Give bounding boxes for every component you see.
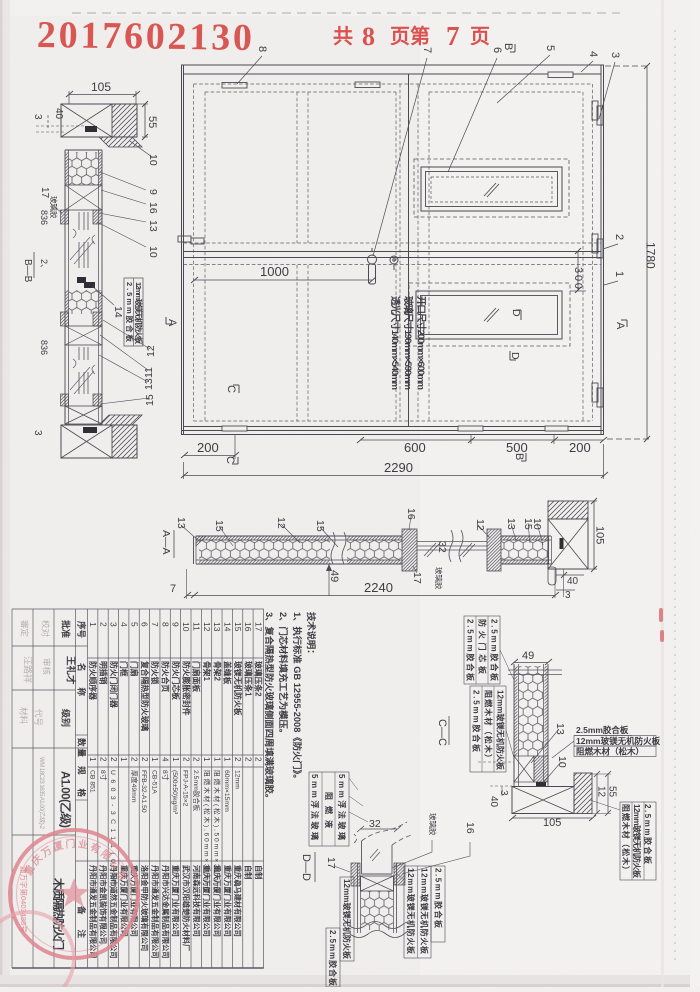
svg-text:12: 12 — [202, 622, 212, 632]
svg-text:12: 12 — [275, 517, 287, 529]
svg-text:7: 7 — [150, 622, 160, 627]
svg-text:13: 13 — [147, 220, 159, 232]
svg-text:A—A: A—A — [160, 530, 172, 555]
svg-text:玻璃压条2: 玻璃压条2 — [254, 661, 264, 697]
svg-text:防火顺序器: 防火顺序器 — [88, 661, 98, 700]
svg-text:1: 1 — [212, 757, 221, 762]
svg-text:1780: 1780 — [644, 242, 658, 269]
svg-text:12mm玻镁无机防火板: 12mm玻镁无机防火板 — [420, 868, 430, 955]
svg-text:5: 5 — [544, 45, 556, 51]
svg-text:技术说明：: 技术说明： — [306, 612, 317, 659]
svg-text:2: 2 — [98, 757, 107, 762]
svg-text:洛阳金甲防火玻璃有限公司: 洛阳金甲防火玻璃有限公司 — [140, 865, 149, 951]
svg-text:8寸: 8寸 — [161, 770, 170, 781]
svg-text:836: 836 — [39, 210, 49, 225]
svg-text:2: 2 — [181, 757, 190, 762]
svg-text:15: 15 — [314, 520, 326, 532]
svg-text:12mm玻镁无机防火板: 12mm玻镁无机防火板 — [134, 282, 144, 345]
svg-text:2.5mm胶合板: 2.5mm胶合板 — [434, 868, 444, 929]
svg-text:11: 11 — [191, 622, 201, 631]
svg-text:A1.00(乙级): A1.00(乙级) — [59, 771, 73, 828]
svg-text:批准: 批准 — [60, 620, 71, 638]
svg-text:厚度49mm: 厚度49mm — [130, 770, 139, 803]
svg-text:重庆万厦门业有限公司: 重庆万厦门业有限公司 — [202, 865, 211, 937]
svg-text:3、复合隔热型防火玻璃侧面四周填满玻璃胶。: 3、复合隔热型防火玻璃侧面四周填满玻璃胶。 — [264, 612, 275, 803]
svg-text:14: 14 — [112, 306, 124, 318]
svg-text:C: C — [225, 385, 237, 393]
svg-text:17: 17 — [325, 857, 337, 869]
svg-text:8: 8 — [160, 622, 170, 627]
svg-text:55: 55 — [607, 786, 618, 798]
svg-text:6: 6 — [140, 622, 150, 627]
svg-text:4: 4 — [161, 757, 170, 762]
svg-text:3: 3 — [32, 430, 43, 436]
svg-text:骨架1: 骨架1 — [202, 661, 212, 682]
svg-text:FPJ-A-15×2: FPJ-A-15×2 — [182, 770, 189, 807]
svg-text:2、: 2、 — [39, 259, 49, 273]
svg-text:C: C — [224, 456, 236, 464]
svg-text:1000: 1000 — [260, 264, 289, 279]
svg-text:渝万字第0403488号: 渝万字第0403488号 — [19, 866, 29, 933]
svg-text:B—B: B—B — [22, 259, 33, 283]
svg-text:2.5mm胶合板: 2.5mm胶合板 — [576, 725, 629, 735]
svg-text:CB-51A: CB-51A — [151, 770, 158, 794]
svg-text:C—C: C—C — [436, 719, 448, 746]
svg-text:2: 2 — [254, 757, 263, 762]
svg-text:12mm: 12mm — [233, 770, 240, 789]
svg-text:1、执行标准 GB 12955-2008《防火门》。: 1、执行标准 GB 12955-2008《防火门》。 — [292, 612, 303, 784]
svg-text:4: 4 — [587, 51, 599, 57]
svg-text:14: 14 — [222, 622, 232, 632]
svg-text:40: 40 — [567, 576, 579, 587]
svg-text:A: A — [166, 319, 178, 327]
svg-text:7: 7 — [421, 47, 433, 53]
svg-text:1: 1 — [119, 757, 128, 762]
svg-text:阻燃木材（松木）: 阻燃木材（松木） — [484, 690, 494, 762]
svg-text:2.5mm胶合板: 2.5mm胶合板 — [328, 930, 338, 987]
svg-text:12: 12 — [596, 786, 607, 798]
svg-text:40: 40 — [53, 108, 64, 120]
svg-text:300: 300 — [572, 267, 584, 289]
svg-text:丹阳市兴达金属制品有限公司: 丹阳市兴达金属制品有限公司 — [161, 865, 170, 958]
svg-text:17: 17 — [254, 622, 264, 632]
svg-text:17: 17 — [411, 572, 423, 584]
svg-text:玻璃胶: 玻璃胶 — [434, 567, 444, 590]
svg-text:60mm×15mm: 60mm×15mm — [223, 770, 230, 812]
svg-text:2: 2 — [613, 234, 625, 240]
svg-text:透光尺寸140mm×540mm: 透光尺寸140mm×540mm — [389, 296, 401, 390]
svg-text:15: 15 — [144, 394, 156, 406]
svg-text:防火锁: 防火锁 — [150, 661, 160, 685]
svg-text:防火膨胀密封件: 防火膨胀密封件 — [181, 661, 191, 716]
svg-text:明插销: 明插销 — [98, 661, 108, 685]
svg-text:2.5mm胶合板: 2.5mm胶合板 — [490, 619, 500, 682]
svg-text:12: 12 — [474, 519, 486, 531]
svg-text:重庆万厦门业有限公司: 重庆万厦门业有限公司 — [223, 865, 232, 937]
svg-text:12mm玻镁无机防火板: 12mm玻镁无机防火板 — [576, 736, 661, 746]
svg-text:自制: 自制 — [244, 865, 253, 879]
svg-text:2240: 2240 — [364, 580, 393, 595]
svg-text:7: 7 — [446, 21, 460, 51]
svg-text:WM 18C23 1635 A1.00(乙级)-2: WM 18C23 1635 A1.00(乙级)-2 — [38, 757, 46, 830]
svg-text:防火合页: 防火合页 — [161, 661, 171, 692]
svg-text:河南森远科技有限公司: 河南森远科技有限公司 — [192, 865, 201, 937]
svg-text:49: 49 — [328, 570, 340, 582]
svg-text:D—D: D—D — [300, 854, 312, 881]
svg-text:9: 9 — [147, 189, 159, 195]
svg-text:玻璃胶: 玻璃胶 — [428, 813, 438, 836]
svg-text:2.5mm胶合板: 2.5mm胶合板 — [643, 804, 653, 865]
svg-text:836: 836 — [39, 340, 49, 355]
svg-text:13: 13 — [175, 517, 187, 529]
svg-text:審定: 審定 — [19, 620, 29, 638]
svg-text:1: 1 — [202, 757, 211, 762]
svg-text:CB 851: CB 851 — [88, 770, 95, 793]
svg-text:丹阳市通发五金制品有限公司: 丹阳市通发五金制品有限公司 — [150, 865, 159, 958]
svg-text:玻璃尺寸190mm×590mm: 玻璃尺寸190mm×590mm — [402, 296, 414, 390]
svg-text:6: 6 — [491, 47, 503, 53]
svg-text:审核: 审核 — [41, 658, 51, 676]
svg-text:2: 2 — [243, 757, 252, 762]
svg-text:骨架2: 骨架2 — [212, 661, 222, 682]
svg-text:级别: 级别 — [60, 708, 71, 727]
svg-text:15: 15 — [213, 520, 225, 532]
svg-text:2: 2 — [98, 622, 108, 627]
svg-text:重庆万厦门业有限公司: 重庆万厦门业有限公司 — [171, 865, 180, 937]
svg-text:3: 3 — [609, 52, 621, 58]
svg-text:2.5mm胶合板: 2.5mm胶合板 — [472, 690, 482, 753]
svg-text:55: 55 — [146, 116, 158, 128]
svg-text:17: 17 — [39, 187, 50, 199]
svg-text:防火门芯板: 防火门芯板 — [171, 661, 181, 700]
svg-text:数 量: 数 量 — [77, 738, 87, 757]
svg-text:8: 8 — [362, 22, 375, 51]
svg-text:开口尺寸200mm×600mm: 开口尺寸200mm×600mm — [415, 296, 427, 390]
svg-text:玻璃压条1: 玻璃压条1 — [243, 661, 253, 697]
svg-text:阻燃木材（松木）: 阻燃木材（松木） — [576, 747, 644, 757]
svg-text:(500±50)kg/m³: (500±50)kg/m³ — [171, 770, 178, 815]
svg-text:汪路祥: 汪路祥 — [22, 656, 33, 683]
svg-text:阻燃液: 阻燃液 — [324, 792, 334, 828]
svg-text:11: 11 — [143, 367, 155, 378]
svg-text:10: 10 — [181, 622, 191, 632]
svg-text:门扇: 门扇 — [130, 661, 140, 677]
svg-text:8: 8 — [256, 46, 268, 52]
svg-text:12mm玻镁无机防火板: 12mm玻镁无机防火板 — [632, 804, 642, 879]
svg-text:40: 40 — [488, 796, 499, 808]
svg-text:丹阳市金凯装饰有限公司: 丹阳市金凯装饰有限公司 — [99, 865, 108, 944]
svg-text:2: 2 — [109, 757, 118, 762]
svg-text:名 称: 名 称 — [77, 663, 87, 696]
svg-text:1: 1 — [171, 757, 180, 762]
svg-text:玻璃胶: 玻璃胶 — [49, 196, 59, 219]
svg-text:规 格: 规 格 — [77, 766, 87, 797]
svg-text:玻镁无机防火板: 玻镁无机防火板 — [233, 661, 243, 716]
svg-text:重庆骉马建材有限公司: 重庆骉马建材有限公司 — [233, 865, 242, 937]
svg-text:200: 200 — [197, 440, 219, 455]
svg-text:阻燃木材（松木）: 阻燃木材（松木） — [621, 804, 631, 874]
svg-text:16: 16 — [147, 202, 159, 214]
svg-text:A: A — [614, 322, 626, 330]
svg-text:自制: 自制 — [254, 865, 263, 879]
svg-text:2: 2 — [233, 757, 242, 762]
svg-text:105: 105 — [543, 817, 561, 829]
svg-text:8寸: 8寸 — [99, 770, 108, 781]
svg-text:4: 4 — [119, 622, 129, 627]
svg-text:木质隔热防火门: 木质隔热防火门 — [52, 877, 66, 950]
svg-text:王礼才: 王礼才 — [64, 656, 76, 685]
svg-text:校对: 校对 — [40, 620, 50, 638]
svg-text:2290: 2290 — [384, 460, 413, 475]
svg-text:1: 1 — [613, 271, 625, 277]
svg-text:16: 16 — [464, 822, 476, 834]
svg-text:1: 1 — [150, 757, 159, 762]
svg-text:105: 105 — [91, 80, 111, 94]
svg-text:材料: 材料 — [18, 707, 28, 725]
svg-text:防火门闭门器: 防火门闭门器 — [109, 661, 119, 708]
svg-text:12mm玻镁无机防火板: 12mm玻镁无机防火板 — [496, 690, 506, 771]
svg-text:2、门芯材料填充工艺为模压。: 2、门芯材料填充工艺为模压。 — [278, 612, 289, 738]
svg-text:1: 1 — [88, 757, 97, 762]
svg-text:600: 600 — [404, 440, 426, 455]
svg-text:2.5mm胶合板: 2.5mm胶合板 — [192, 770, 201, 811]
svg-text:复合隔热型防火玻璃: 复合隔热型防火玻璃 — [140, 660, 150, 731]
svg-text:门: 门 — [65, 837, 76, 851]
svg-text:49: 49 — [522, 650, 534, 662]
svg-text:10: 10 — [147, 154, 159, 166]
svg-text:5: 5 — [129, 622, 139, 627]
svg-text:3: 3 — [32, 114, 43, 120]
svg-text:门框: 门框 — [119, 661, 129, 677]
svg-text:3: 3 — [565, 590, 571, 601]
svg-text:1: 1 — [223, 757, 232, 762]
svg-text:2: 2 — [192, 757, 201, 762]
svg-text:2: 2 — [140, 757, 149, 762]
svg-text:1: 1 — [88, 622, 98, 627]
svg-text:门扇面板: 门扇面板 — [192, 661, 202, 692]
svg-text:9: 9 — [171, 622, 181, 627]
svg-text:12mm玻镁无机防火板: 12mm玻镁无机防火板 — [342, 879, 352, 960]
svg-text:105: 105 — [594, 526, 606, 544]
svg-text:序号: 序号 — [77, 620, 87, 639]
svg-text:2: 2 — [130, 757, 139, 762]
svg-text:15: 15 — [233, 622, 243, 632]
svg-text:16: 16 — [243, 622, 253, 632]
svg-text:32: 32 — [369, 818, 381, 830]
svg-text:武汉市汉阳雄楚防火材料厂: 武汉市汉阳雄楚防火材料厂 — [181, 865, 190, 951]
svg-text:32: 32 — [436, 541, 448, 553]
svg-text:200: 200 — [569, 440, 591, 455]
svg-text:B: B — [513, 453, 525, 460]
svg-text:页第: 页第 — [390, 24, 430, 48]
svg-text:共: 共 — [333, 25, 353, 48]
svg-text:重庆万厦门业有限公司: 重庆万厦门业有限公司 — [213, 865, 222, 937]
svg-text:7: 7 — [170, 583, 176, 595]
svg-text:10: 10 — [147, 246, 159, 258]
svg-text:13: 13 — [212, 622, 222, 632]
svg-text:D: D — [509, 352, 521, 360]
svg-text:FFB-32-A1.50: FFB-32-A1.50 — [140, 770, 147, 813]
svg-text:丹阳市通发五金制品有限公司: 丹阳市通发五金制品有限公司 — [88, 865, 97, 958]
svg-text:3: 3 — [109, 622, 119, 627]
svg-text:12mm玻镁无机防火板: 12mm玻镁无机防火板 — [406, 868, 416, 955]
svg-text:盖缝板: 盖缝板 — [223, 661, 233, 685]
svg-text:2.5mm胶合板: 2.5mm胶合板 — [466, 619, 476, 682]
svg-text:备 注: 备 注 — [76, 905, 86, 938]
svg-text:页: 页 — [470, 26, 490, 48]
svg-text:代号: 代号 — [33, 709, 43, 726]
